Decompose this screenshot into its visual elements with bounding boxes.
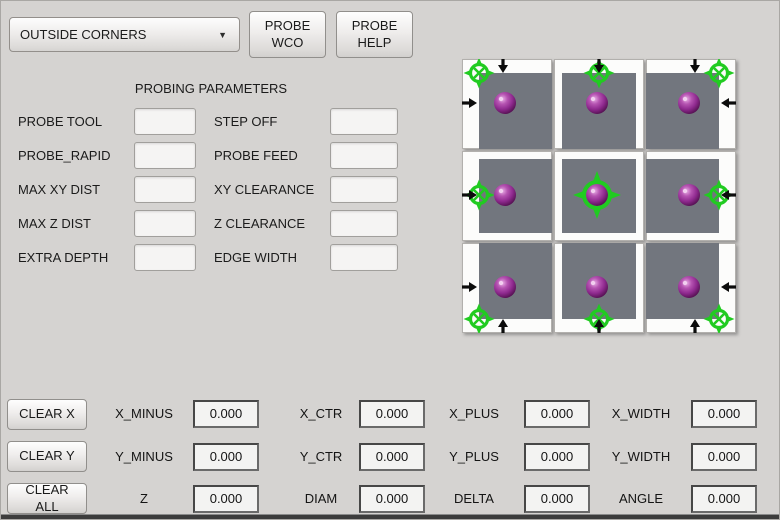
probe-outside-edge-bottom[interactable]	[554, 243, 644, 333]
edge-width-label: EDGE WIDTH	[214, 244, 297, 271]
probe-screen-window: OUTSIDE CORNERS ▼ PROBE WCO PROBE HELP P…	[0, 0, 780, 520]
z-label: Z	[100, 485, 188, 513]
probe-wco-button[interactable]: PROBE WCO	[249, 11, 326, 58]
max-z-dist-input[interactable]	[134, 210, 196, 237]
probe-outside-corner-bottom-left-image	[462, 243, 552, 333]
y-plus-label: Y_PLUS	[430, 443, 518, 471]
probe-outside-edge-top[interactable]	[554, 59, 644, 149]
step-off-label: STEP OFF	[214, 108, 277, 135]
z-value: 0.000	[193, 485, 259, 513]
delta-label: DELTA	[430, 485, 518, 513]
param-row-probe-tool: PROBE TOOL STEP OFF	[1, 108, 421, 135]
angle-label: ANGLE	[597, 485, 685, 513]
max-z-dist-label: MAX Z DIST	[18, 210, 91, 237]
x-ctr-label: X_CTR	[277, 400, 365, 428]
y-width-value: 0.000	[691, 443, 757, 471]
probe-feed-label: PROBE FEED	[214, 142, 298, 169]
y-ctr-value: 0.000	[359, 443, 425, 471]
probe-center[interactable]	[554, 151, 644, 241]
probe-rapid-input[interactable]	[134, 142, 196, 169]
probe-tool-label: PROBE TOOL	[18, 108, 102, 135]
x-plus-value: 0.000	[524, 400, 590, 428]
extra-depth-input[interactable]	[134, 244, 196, 271]
probe-outside-corner-bottom-right-image	[646, 243, 736, 333]
param-row-probe-rapid: PROBE_RAPID PROBE FEED	[1, 142, 421, 169]
step-off-input[interactable]	[330, 108, 398, 135]
probe-help-button[interactable]: PROBE HELP	[336, 11, 413, 58]
probe-mode-select[interactable]: OUTSIDE CORNERS ▼	[9, 17, 240, 52]
param-row-max-xy: MAX XY DIST XY CLEARANCE	[1, 176, 421, 203]
chevron-down-icon: ▼	[218, 30, 239, 40]
x-minus-label: X_MINUS	[100, 400, 188, 428]
probe-tool-input[interactable]	[134, 108, 196, 135]
probe-outside-edge-left[interactable]	[462, 151, 552, 241]
probe-outside-corner-bottom-left[interactable]	[462, 243, 552, 333]
x-plus-label: X_PLUS	[430, 400, 518, 428]
clear-x-button[interactable]: CLEAR X	[7, 399, 87, 430]
clear-all-button[interactable]: CLEAR ALL	[7, 483, 87, 514]
max-xy-dist-label: MAX XY DIST	[18, 176, 100, 203]
y-ctr-label: Y_CTR	[277, 443, 365, 471]
probe-outside-corner-bottom-right[interactable]	[646, 243, 736, 333]
probe-position-grid	[462, 59, 736, 333]
delta-value: 0.000	[524, 485, 590, 513]
x-width-value: 0.000	[691, 400, 757, 428]
extra-depth-label: EXTRA DEPTH	[18, 244, 108, 271]
x-ctr-value: 0.000	[359, 400, 425, 428]
probe-mode-selected-value: OUTSIDE CORNERS	[10, 27, 218, 42]
probe-feed-input[interactable]	[330, 142, 398, 169]
y-width-label: Y_WIDTH	[597, 443, 685, 471]
probe-outside-corner-top-right[interactable]	[646, 59, 736, 149]
param-row-max-z: MAX Z DIST Z CLEARANCE	[1, 210, 421, 237]
z-clearance-label: Z CLEARANCE	[214, 210, 305, 237]
max-xy-dist-input[interactable]	[134, 176, 196, 203]
y-minus-label: Y_MINUS	[100, 443, 188, 471]
probe-outside-corner-top-left[interactable]	[462, 59, 552, 149]
probe-rapid-label: PROBE_RAPID	[18, 142, 110, 169]
z-clearance-input[interactable]	[330, 210, 398, 237]
y-plus-value: 0.000	[524, 443, 590, 471]
probe-center-image	[554, 151, 644, 241]
diam-label: DIAM	[277, 485, 365, 513]
clear-y-button[interactable]: CLEAR Y	[7, 441, 87, 472]
xy-clearance-input[interactable]	[330, 176, 398, 203]
y-minus-value: 0.000	[193, 443, 259, 471]
edge-width-input[interactable]	[330, 244, 398, 271]
diam-value: 0.000	[359, 485, 425, 513]
probe-outside-edge-left-image	[462, 151, 552, 241]
x-minus-value: 0.000	[193, 400, 259, 428]
angle-value: 0.000	[691, 485, 757, 513]
probe-outside-edge-top-image	[554, 59, 644, 149]
probe-outside-edge-bottom-image	[554, 243, 644, 333]
probing-parameters-title: PROBING PARAMETERS	[1, 81, 421, 96]
probe-outside-corner-top-right-image	[646, 59, 736, 149]
param-row-extra-depth: EXTRA DEPTH EDGE WIDTH	[1, 244, 421, 271]
probe-outside-edge-right-image	[646, 151, 736, 241]
window-bottom-edge	[1, 514, 779, 519]
probe-outside-corner-top-left-image	[462, 59, 552, 149]
xy-clearance-label: XY CLEARANCE	[214, 176, 314, 203]
probe-outside-edge-right[interactable]	[646, 151, 736, 241]
x-width-label: X_WIDTH	[597, 400, 685, 428]
